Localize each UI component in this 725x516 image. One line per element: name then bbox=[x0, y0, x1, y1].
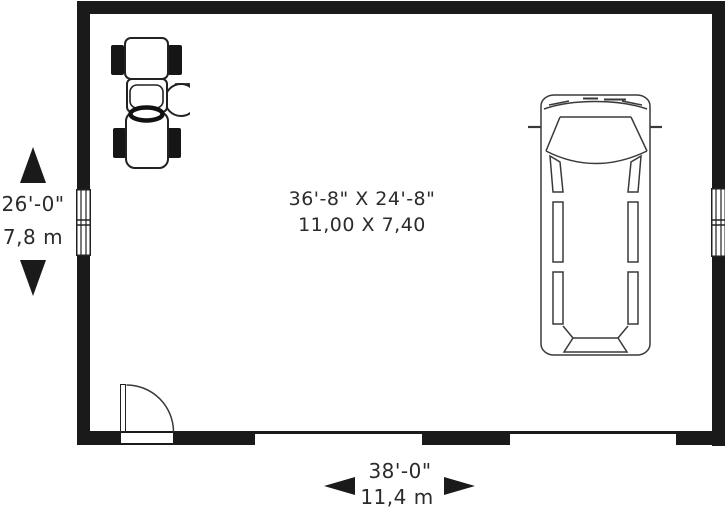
entry-door-opening bbox=[121, 431, 173, 445]
bottom-wall-segment-a bbox=[77, 431, 121, 445]
window-left bbox=[76, 189, 91, 256]
width-dimension-imperial: 38'-0" bbox=[350, 458, 450, 484]
bottom-wall-pier bbox=[422, 431, 510, 445]
garage-door-opening-1 bbox=[255, 431, 422, 434]
depth-dimension-metric: 7,8 m bbox=[0, 224, 66, 250]
left-wall-lower bbox=[77, 256, 90, 445]
width-arrow-right-icon bbox=[444, 477, 475, 495]
van-icon bbox=[527, 92, 663, 360]
depth-dimension-imperial: 26'-0" bbox=[0, 191, 66, 217]
area-label-metric: 11,00 X 7,40 bbox=[252, 212, 472, 238]
area-label-imperial: 36'-8" X 24'-8" bbox=[252, 186, 472, 212]
right-wall-lower bbox=[712, 257, 725, 446]
left-wall-upper bbox=[77, 1, 90, 189]
depth-arrow-up-icon bbox=[20, 147, 46, 183]
bottom-wall-segment-c bbox=[676, 431, 725, 445]
garage-door-opening-2 bbox=[510, 431, 676, 434]
right-wall-upper bbox=[712, 1, 725, 188]
floor-plan: 36'-8" X 24'-8" 11,00 X 7,40 26'-0" 7,8 … bbox=[0, 0, 725, 516]
top-wall bbox=[77, 1, 725, 14]
depth-arrow-down-icon bbox=[20, 260, 46, 296]
width-dimension-metric: 11,4 m bbox=[347, 484, 447, 510]
tractor-icon bbox=[105, 32, 190, 172]
bottom-wall-segment-b bbox=[173, 431, 255, 445]
door-swing-arc bbox=[126, 384, 175, 432]
window-right bbox=[711, 188, 725, 257]
